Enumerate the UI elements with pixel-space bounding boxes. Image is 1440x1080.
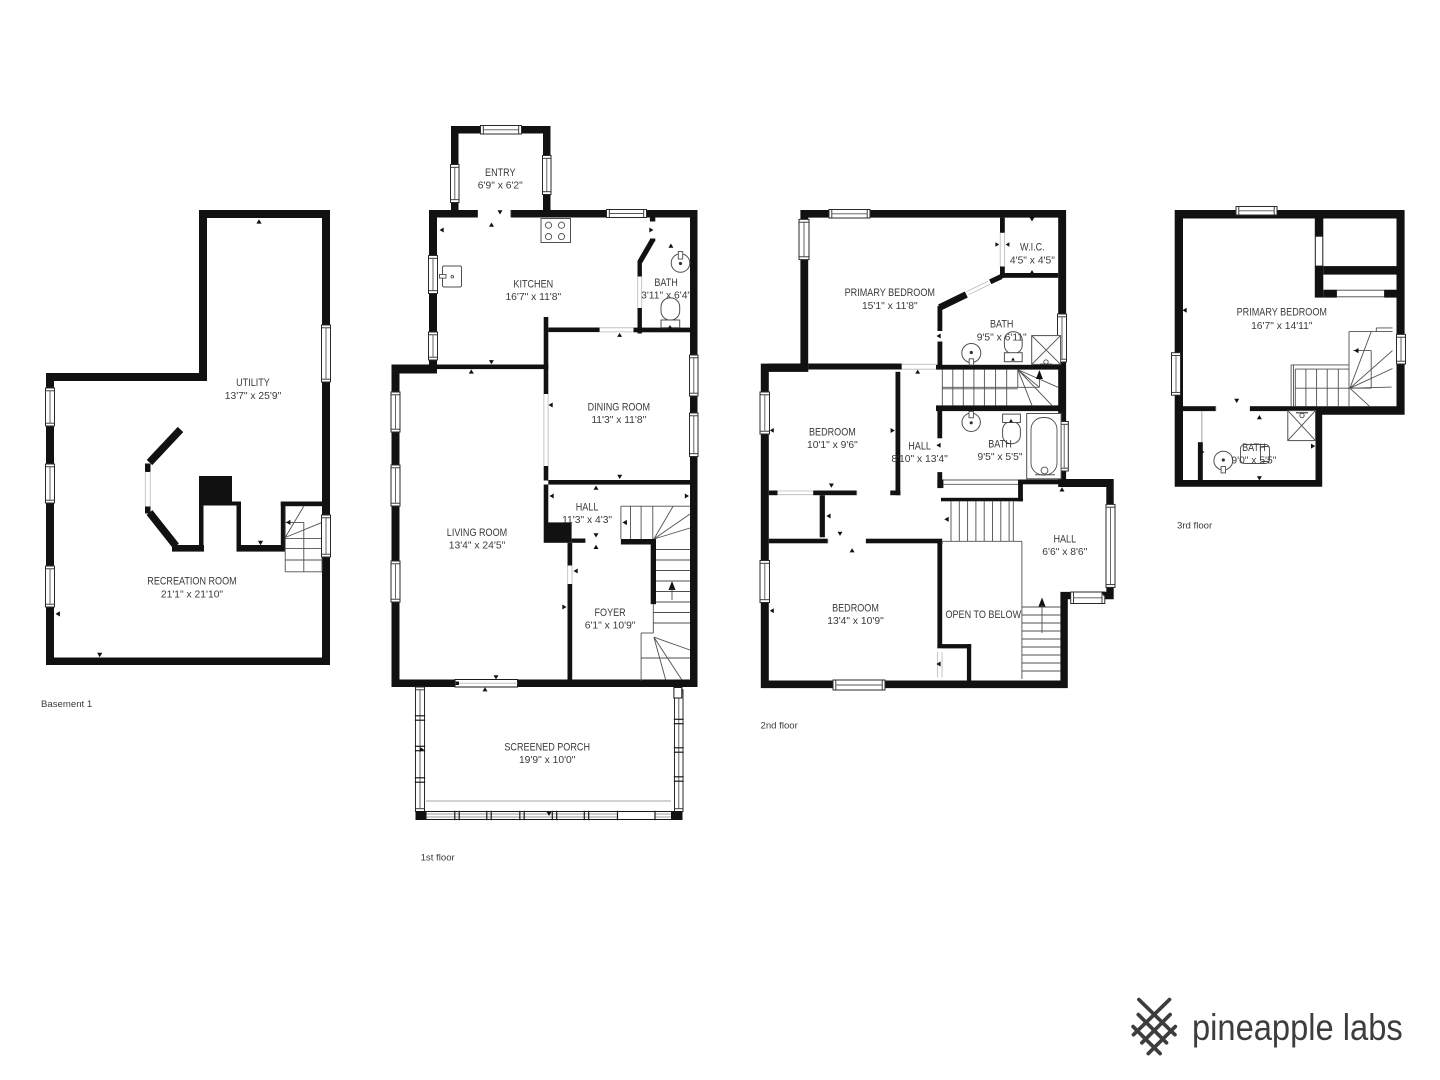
- svg-text:DINING ROOM: DINING ROOM: [588, 402, 650, 414]
- svg-text:OPEN TO BELOW: OPEN TO BELOW: [945, 609, 1021, 621]
- svg-text:9'0" x 5'5": 9'0" x 5'5": [1231, 456, 1276, 467]
- svg-text:9'5" x 6'11": 9'5" x 6'11": [977, 333, 1027, 344]
- svg-text:PRIMARY BEDROOM: PRIMARY BEDROOM: [1237, 307, 1327, 319]
- svg-text:13'4" x 10'9": 13'4" x 10'9": [827, 616, 884, 627]
- svg-text:13'7" x 25'9": 13'7" x 25'9": [225, 391, 282, 402]
- svg-text:13'4" x 24'5": 13'4" x 24'5": [449, 541, 506, 552]
- svg-text:BEDROOM: BEDROOM: [809, 427, 856, 439]
- svg-text:PRIMARY BEDROOM: PRIMARY BEDROOM: [845, 287, 935, 299]
- svg-text:BEDROOM: BEDROOM: [832, 603, 879, 615]
- svg-text:6'6" x 8'6": 6'6" x 8'6": [1042, 547, 1087, 558]
- svg-text:BATH: BATH: [654, 277, 678, 289]
- svg-text:W.I.C.: W.I.C.: [1020, 242, 1045, 254]
- svg-text:3'11" x 6'4": 3'11" x 6'4": [641, 291, 691, 302]
- svg-text:4'5" x 4'5": 4'5" x 4'5": [1010, 256, 1055, 267]
- svg-text:LIVING ROOM: LIVING ROOM: [447, 527, 507, 539]
- svg-text:3rd floor: 3rd floor: [1177, 521, 1213, 532]
- svg-text:16'7" x 11'8": 16'7" x 11'8": [505, 292, 561, 303]
- svg-text:6'1" x 10'9": 6'1" x 10'9": [585, 621, 636, 632]
- svg-text:15'1" x 11'8": 15'1" x 11'8": [862, 301, 918, 312]
- svg-text:UTILITY: UTILITY: [236, 377, 270, 389]
- svg-text:HALL: HALL: [908, 441, 931, 453]
- svg-text:10'1" x 9'6": 10'1" x 9'6": [807, 440, 858, 451]
- svg-text:2nd floor: 2nd floor: [761, 721, 799, 732]
- svg-text:11'3" x 11'8": 11'3" x 11'8": [591, 415, 646, 426]
- svg-text:BATH: BATH: [988, 439, 1012, 451]
- svg-text:21'1" x 21'10": 21'1" x 21'10": [161, 590, 224, 601]
- svg-text:11'3" x 4'3": 11'3" x 4'3": [562, 515, 612, 526]
- svg-text:KITCHEN: KITCHEN: [513, 279, 553, 291]
- svg-text:BATH: BATH: [1242, 442, 1266, 454]
- svg-text:9'5" x 5'5": 9'5" x 5'5": [977, 452, 1022, 463]
- svg-text:SCREENED PORCH: SCREENED PORCH: [504, 742, 590, 754]
- svg-text:8'10" x 13'4": 8'10" x 13'4": [891, 454, 948, 465]
- svg-text:pineapple labs: pineapple labs: [1192, 1007, 1403, 1048]
- svg-text:RECREATION ROOM: RECREATION ROOM: [147, 576, 236, 588]
- svg-text:16'7" x 14'11": 16'7" x 14'11": [1251, 321, 1313, 332]
- svg-text:FOYER: FOYER: [595, 607, 626, 619]
- svg-text:BATH: BATH: [990, 319, 1014, 331]
- svg-text:Basement 1: Basement 1: [41, 699, 92, 710]
- svg-text:ENTRY: ENTRY: [485, 167, 516, 179]
- svg-text:19'9" x 10'0": 19'9" x 10'0": [519, 755, 576, 766]
- svg-text:HALL: HALL: [1053, 534, 1076, 546]
- svg-text:6'9" x 6'2": 6'9" x 6'2": [478, 181, 523, 192]
- svg-text:1st floor: 1st floor: [421, 853, 456, 864]
- svg-text:HALL: HALL: [576, 502, 599, 514]
